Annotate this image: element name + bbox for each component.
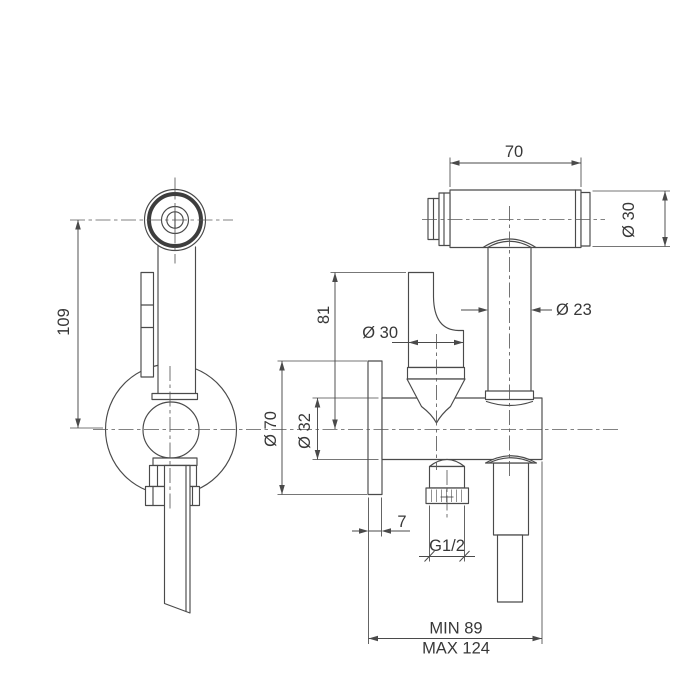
dim-label-81: 81: [315, 306, 333, 324]
dim-label-tube-diameter: Ø 23: [556, 301, 592, 319]
holder-hook: [141, 273, 154, 378]
dim-wall-flange-diameter: Ø 70: [262, 361, 367, 495]
dim-label-109: 109: [55, 308, 73, 336]
valve-body: [382, 398, 542, 460]
dim-handset-length: 109: [55, 220, 103, 428]
front-view: [106, 190, 237, 614]
dim-label-7: 7: [397, 513, 406, 531]
valve-circle: [143, 402, 199, 458]
valve-top-block: [152, 394, 198, 400]
side-view: [368, 190, 590, 602]
dim-spray-head-length: 70: [450, 143, 581, 187]
dim-outlet-thread: G1/2: [419, 506, 475, 562]
dim-wall-plate-thickness: 7: [352, 498, 410, 645]
spray-head-side: [428, 190, 590, 248]
wall-plate: [368, 361, 382, 495]
dim-label-70: 70: [505, 143, 523, 161]
dim-valve-body-diameter: Ø 32: [296, 398, 379, 460]
dim-label-flange-diameter: Ø 70: [262, 411, 280, 447]
handle-lever: [409, 273, 464, 368]
dim-label-thread: G1/2: [429, 537, 465, 555]
bracket-plate: [153, 458, 197, 466]
drawing-page: 70 Ø 30 Ø 23 81 Ø 30 Ø 70: [0, 0, 700, 700]
dim-label-body-diameter: Ø 32: [296, 413, 314, 449]
holder-tube-lower: [486, 456, 537, 602]
dim-label-handle-diameter: Ø 30: [362, 324, 398, 342]
dim-label-head-diameter: Ø 30: [620, 202, 638, 238]
dim-label-max-depth: MAX 124: [422, 640, 490, 658]
dim-label-min-depth: MIN 89: [429, 620, 482, 638]
technical-drawing: 70 Ø 30 Ø 23 81 Ø 30 Ø 70: [0, 0, 700, 700]
dim-spray-head-diameter: Ø 30: [593, 191, 671, 247]
